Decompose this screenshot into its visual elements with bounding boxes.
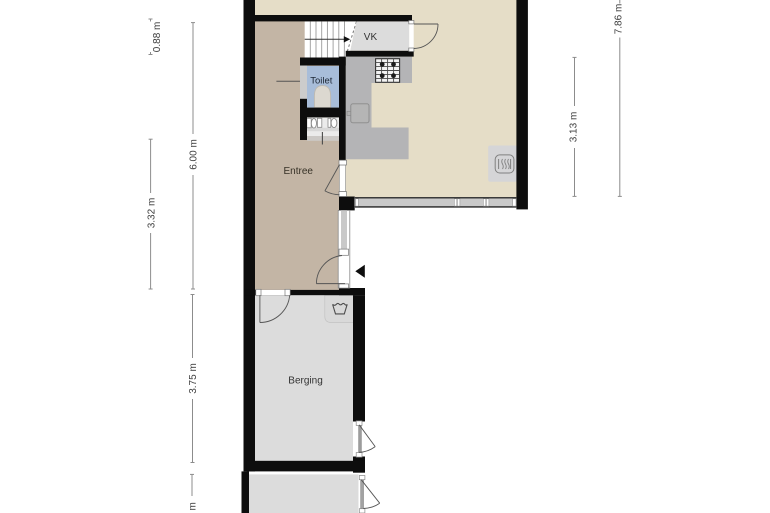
svg-text:3.75 m: 3.75 m xyxy=(188,363,199,394)
svg-text:3.32 m: 3.32 m xyxy=(147,198,158,229)
svg-text:1.05 m: 1.05 m xyxy=(188,502,199,513)
svg-text:VK: VK xyxy=(364,32,378,43)
svg-text:Berging: Berging xyxy=(288,376,322,387)
svg-text:3.13 m: 3.13 m xyxy=(568,112,579,143)
svg-text:7.86 m: 7.86 m xyxy=(614,4,625,35)
svg-text:6.00 m: 6.00 m xyxy=(189,139,200,170)
svg-text:Toilet: Toilet xyxy=(310,76,333,87)
svg-text:0.88 m: 0.88 m xyxy=(152,22,163,53)
svg-text:Entree: Entree xyxy=(284,166,314,177)
